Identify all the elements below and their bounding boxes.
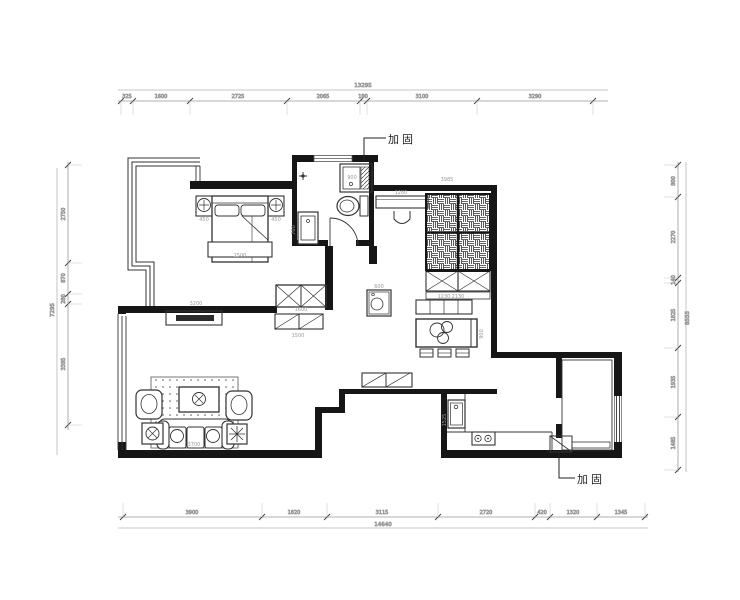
wall-hall-south [339,389,497,394]
floor-plan-drawing: 3251600272520651903100329013295390018203… [0,0,740,600]
wall-room2-right [491,191,497,352]
shoe-cabinet [275,314,323,329]
dimension-left: 275087028033957295 [50,162,82,455]
wall-bath-top-right [352,155,378,162]
dimension-top: 3251600272520651903100329013295 [118,83,608,115]
vanity-sink [298,212,318,244]
stove [472,432,495,445]
wall-notch-vert-2 [339,392,345,413]
dimension-text: 325 [122,94,132,100]
dimension-text: 140 [671,275,677,285]
balcony-connector [196,166,200,181]
interior-dimension: 700 [291,225,297,235]
desk [376,196,428,208]
interior-dimension: 3985 [441,177,454,183]
wall-living-north [120,306,277,313]
dimension-text: 1600 [155,94,168,100]
armchair-left [136,390,162,419]
kitchen-sink [448,400,465,428]
balcony-window [128,158,200,306]
dimension-total: 8555 [685,311,691,325]
desk-chair [394,211,410,224]
toilet [337,196,368,216]
interior-dimension: 1600 [295,307,308,313]
interior-dimension: 1525 [442,414,448,427]
washing-machine [367,290,391,316]
tv-cabinet [166,311,222,325]
dimension-text: 2720 [480,510,493,516]
reinforcement-label-bottom: 加固 [577,471,605,487]
reinforcement-label-top: 加固 [388,131,416,147]
interior-dimension: 450 [199,217,209,223]
interior-dimension: 3200 [190,301,203,307]
dimension-text: 900 [671,176,677,186]
armchair-right [226,391,252,420]
dimension-text: 1820 [288,510,301,516]
wall-bedroom-top [190,181,295,189]
dimension-total: 14640 [374,522,392,528]
bathroom-door [330,218,358,246]
living-window [118,314,126,450]
nightstand-right [268,196,284,216]
dining-table [416,319,477,347]
interior-dimension: 2130 [452,294,465,300]
tv [176,315,214,321]
dimension-text: 190 [358,94,368,100]
interior-dimension: 3700 [188,442,201,448]
nightstand-left [196,196,212,216]
dining-counter [416,300,472,314]
dimension-text: 1320 [567,510,580,516]
dimension-total: 13295 [354,83,372,89]
interior-dimension: 900 [347,175,357,181]
dimension-text: 1935 [671,376,677,389]
dimension-text: 2750 [61,208,67,221]
side-table-right [227,424,247,444]
dimension-text: 420 [537,510,547,516]
kitchen [362,360,612,452]
x-cabinet [276,285,326,307]
wall-bath-bottom-right [356,240,374,246]
shower-head-icon [299,172,307,180]
wall-notch-vert-1 [315,407,322,458]
coffee-table [179,387,219,412]
dimension-text: 3900 [186,510,199,516]
interior-dimension: 1230 [438,294,451,300]
wall-living-bottom [118,450,322,458]
interior-dimension: 1500 [292,333,305,339]
wall-corridor-stub-2 [369,246,377,264]
wall-room2-top [374,185,497,191]
wall-utility-stub-top [556,358,562,398]
dimension-text: 870 [61,273,67,283]
balcony-window [132,162,200,306]
utility-window [615,396,622,442]
interior-dimension: 900 [479,329,485,339]
side-table-left [142,423,163,444]
bathroom [298,164,372,246]
stools [420,349,469,357]
dimension-total: 7295 [50,303,56,317]
dimension-text: 1345 [615,510,628,516]
room2 [376,194,490,299]
interior-dimension: 600 [374,284,384,290]
dimension-text: 2065 [317,94,330,100]
bathroom-window [314,156,352,162]
dimension-text: 2270 [671,231,677,244]
dimension-text: 3290 [529,94,542,100]
floorplan-canvas: 3251600272520651903100329013295390018203… [0,0,740,600]
dimension-text: 1485 [671,437,677,450]
dimension-text: 3100 [416,94,429,100]
living-room [136,311,252,449]
wall-bath-top-left [292,155,314,162]
interior-dimension: 1280 [395,190,408,196]
wardrobe [426,194,490,270]
dimension-bottom: 39001820311527204201320134514640 [118,503,648,528]
wall-kitchen-bottom [441,450,622,458]
pantry-cabinet [362,373,412,387]
dimension-text: 1825 [671,309,677,322]
dining [416,300,477,357]
dimension-text: 280 [61,294,67,304]
wall-kitchen-top [491,352,622,358]
interior-dimension: 450 [271,217,281,223]
dimension-text: 3395 [61,358,67,371]
dimension-right: 90022701401825193514858555 [664,162,691,473]
dimension-text: 2725 [232,94,245,100]
wall-living-corner-top [118,306,126,314]
interior-dimension: 1500 [234,253,247,259]
dimension-text: 3115 [376,510,389,516]
